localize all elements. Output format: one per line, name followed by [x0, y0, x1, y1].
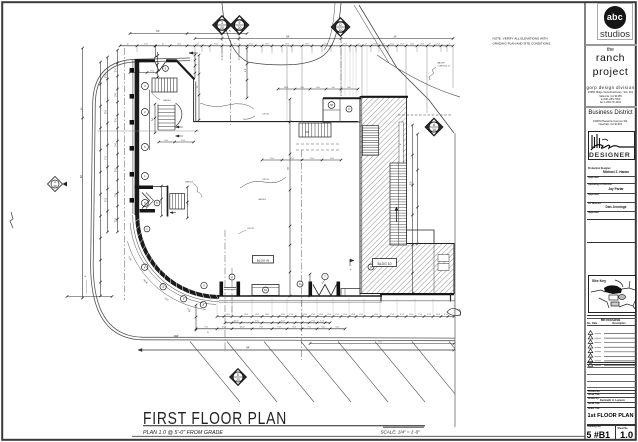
svg-text:54': 54' — [156, 29, 160, 33]
svg-text:GRLNG: GRLNG — [258, 199, 266, 201]
svg-text:5: 5 — [237, 373, 239, 377]
svg-text:10'-0: 10'-0 — [240, 327, 246, 329]
svg-text:10: 10 — [432, 128, 436, 132]
svg-text:84': 84' — [286, 34, 290, 38]
svg-text:GRADING PLAN AND SITE CONDITIO: GRADING PLAN AND SITE CONDITIONS. — [493, 41, 552, 45]
svg-text:70': 70' — [287, 166, 290, 170]
svg-text:NOTE: VERIFY ALL ELEVATIONS WI: NOTE: VERIFY ALL ELEVATIONS WITH — [493, 37, 548, 41]
svg-text:DN: DN — [305, 130, 309, 134]
svg-text:104': 104' — [173, 334, 179, 338]
svg-text:SCALE: 1/4" = 1'-0": SCALE: 1/4" = 1'-0" — [381, 430, 421, 435]
svg-text:BLDG IN: BLDG IN — [257, 259, 269, 263]
svg-text:94': 94' — [246, 346, 250, 350]
svg-text:PLAN 1.0 @ 5'-0" FROM GRADE: PLAN 1.0 @ 5'-0" FROM GRADE — [143, 430, 223, 436]
svg-text:3: 3 — [221, 21, 223, 25]
svg-text:9: 9 — [239, 21, 241, 25]
svg-text:20: 20 — [238, 26, 242, 30]
svg-text:ABOVE: ABOVE — [438, 62, 446, 65]
svg-text:C3L IN: C3L IN — [262, 114, 269, 116]
svg-text:14': 14' — [393, 35, 397, 38]
svg-text:2: 2 — [151, 118, 153, 122]
svg-text:20: 20 — [236, 378, 240, 382]
svg-text:BLDG 10: BLDG 10 — [378, 262, 392, 266]
svg-text:C3L IN: C3L IN — [262, 179, 269, 181]
svg-text:84': 84' — [80, 174, 83, 178]
svg-text:10-2: 10-2 — [284, 87, 289, 89]
svg-text:GRLNG: GRLNG — [185, 182, 193, 184]
svg-text:GRLNG: GRLNG — [163, 100, 171, 102]
svg-text:Site Key: Site Key — [592, 279, 606, 283]
svg-text:FIRST FLOOR PLAN: FIRST FLOOR PLAN — [143, 408, 287, 428]
svg-text:20: 20 — [53, 184, 57, 188]
svg-text:C3L IN: C3L IN — [247, 228, 254, 230]
svg-text:10'-0: 10'-0 — [234, 321, 240, 323]
svg-text:CONTROL JT: CONTROL JT — [438, 66, 452, 68]
svg-text:10: 10 — [339, 28, 343, 32]
svg-text:20: 20 — [220, 26, 224, 30]
